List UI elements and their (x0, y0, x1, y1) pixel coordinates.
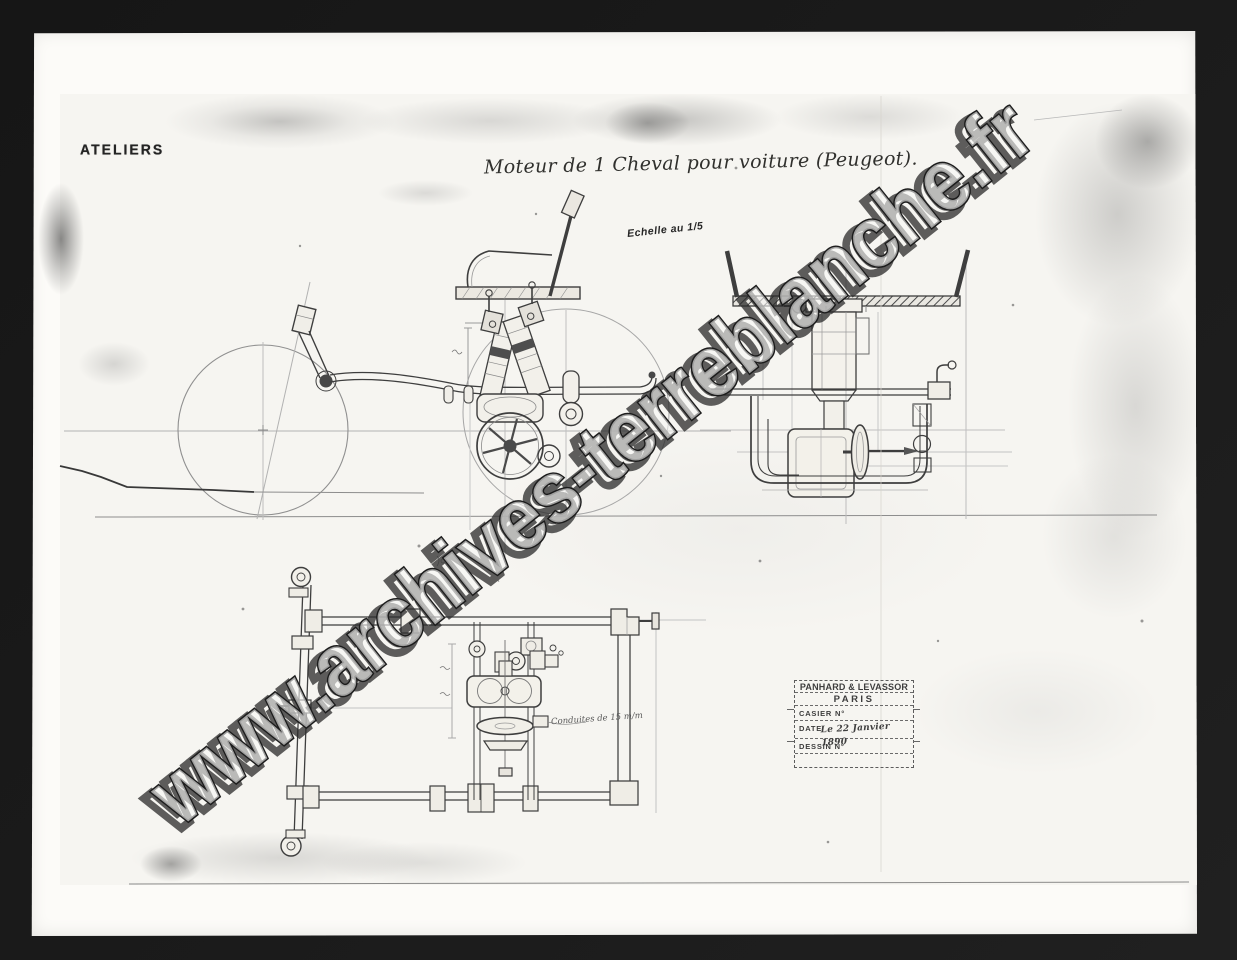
workshop-stamp: ATELIERS (80, 141, 164, 158)
title-block-stamp: PANHARD & LEVASSOR PARIS CASIER N° DATE … (794, 680, 914, 768)
stamp-date-label: DATE (799, 724, 822, 733)
stamp-dessin: DESSIN N° (795, 739, 913, 754)
archive-photo-scan: ATELIERS Moteur de 1 Cheval pour voiture… (0, 0, 1237, 960)
stamp-tick (913, 741, 920, 742)
stamp-casier: CASIER N° (795, 706, 913, 721)
stamp-tick (913, 709, 920, 710)
stamp-city: PARIS (795, 693, 913, 706)
stamp-date-row: DATE Le 22 Janvier 1890 (795, 721, 913, 739)
stamp-tick (787, 709, 794, 710)
stamp-company: PANHARD & LEVASSOR (795, 681, 913, 693)
stamp-tick (787, 741, 794, 742)
drawing-linework: www.archives-terreblanche.fr www.archive… (0, 0, 1237, 960)
